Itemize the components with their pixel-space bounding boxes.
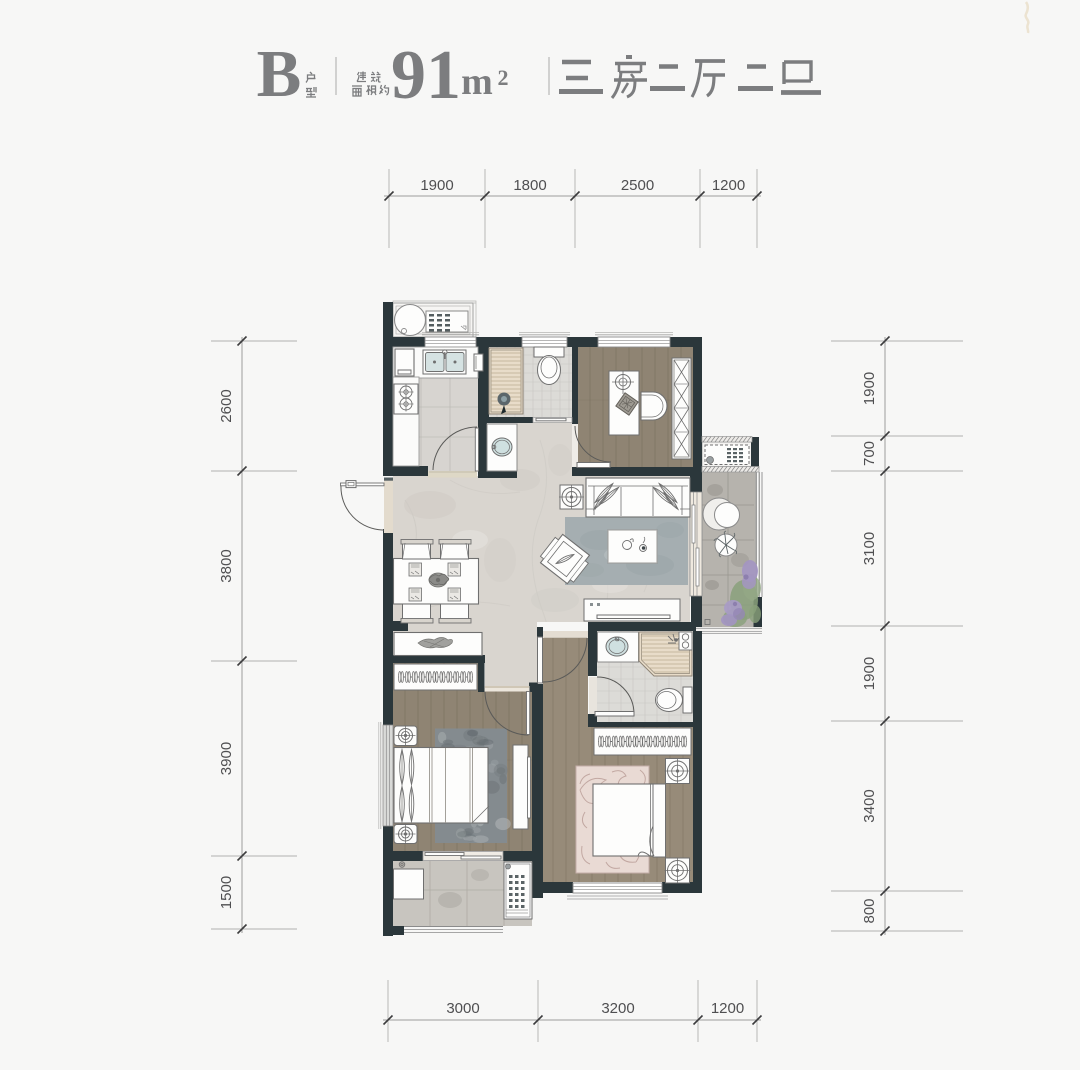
svg-text:1900: 1900 [861,372,878,405]
svg-text:1900: 1900 [861,657,878,690]
svg-text:m: m [461,61,493,103]
svg-text:1200: 1200 [712,177,745,194]
svg-text:3900: 3900 [218,742,235,775]
svg-text:3800: 3800 [218,549,235,582]
svg-text:1200: 1200 [711,1000,744,1017]
svg-text:700: 700 [861,441,878,466]
svg-text:800: 800 [861,898,878,923]
svg-text:1800: 1800 [513,177,546,194]
svg-text:3400: 3400 [861,789,878,822]
svg-text:3000: 3000 [446,1000,479,1017]
svg-text:1900: 1900 [420,177,453,194]
svg-text:2600: 2600 [218,389,235,422]
svg-text:2500: 2500 [621,177,654,194]
svg-text:B: B [257,37,302,111]
svg-text:1500: 1500 [218,876,235,909]
svg-text:91: 91 [391,37,461,114]
svg-text:3100: 3100 [861,532,878,565]
svg-text:3200: 3200 [601,1000,634,1017]
svg-text:2: 2 [498,65,509,90]
